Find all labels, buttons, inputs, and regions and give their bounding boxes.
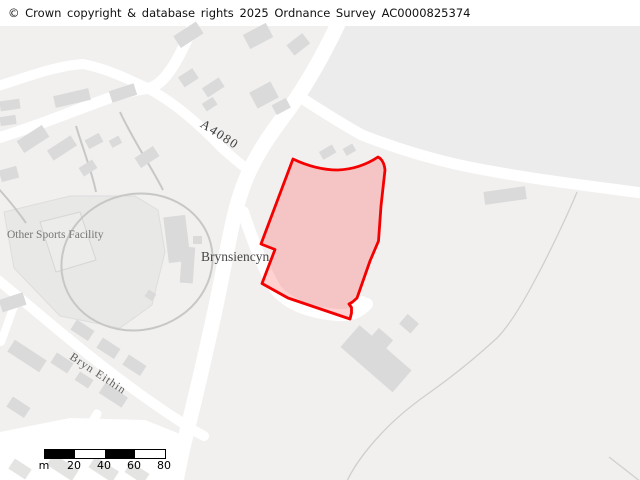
scale-bar-segment [105, 450, 135, 458]
scale-tick-label: 40 [97, 459, 111, 472]
scale-bar-labels: m 20 40 60 80 [0, 459, 220, 473]
sports-facility-label: Other Sports Facility [7, 229, 103, 241]
scale-bar-segment [135, 450, 165, 458]
copyright-notice: © Crown copyright & database rights 2025… [8, 6, 470, 20]
scale-tick-label: 80 [157, 459, 171, 472]
scale-bar-segment [45, 450, 75, 458]
os-map-window: © Crown copyright & database rights 2025… [0, 0, 640, 480]
scale-bar-segment [75, 450, 105, 458]
settlement-label: Brynsiencyn [201, 249, 269, 265]
scale-bar [44, 449, 166, 459]
scale-unit-label: m [39, 459, 50, 472]
scale-tick-label: 60 [127, 459, 141, 472]
scale-tick-label: 20 [67, 459, 81, 472]
